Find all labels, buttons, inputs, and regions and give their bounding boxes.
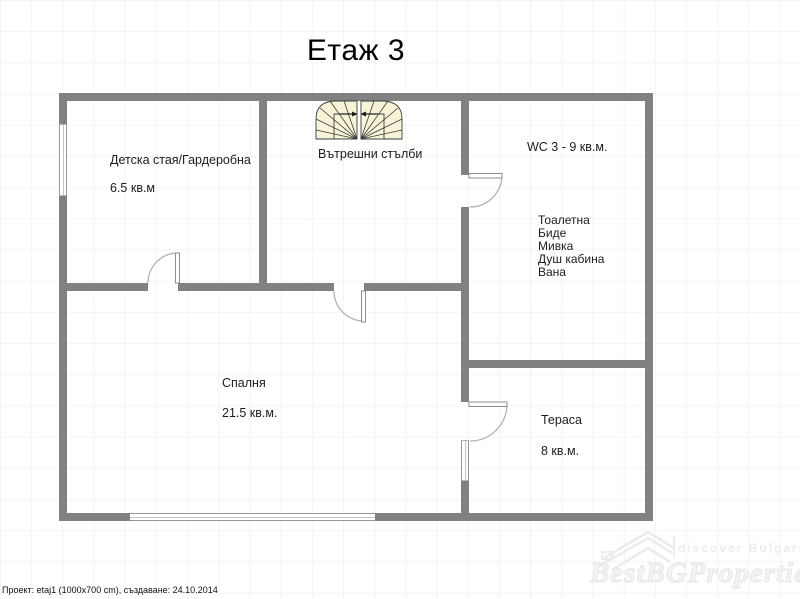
door-children-room	[148, 253, 180, 283]
stairs-label: Вътрешни стълби	[318, 147, 422, 161]
wc-fixture-item: Вана	[538, 266, 604, 279]
floor-plan-page: Етаж 3	[0, 0, 800, 599]
door-terrace	[469, 402, 507, 441]
bedroom-label: Спалня	[222, 376, 266, 390]
wc-fixture-list: Тоалетна Биде Мивка Душ кабина Вана	[538, 214, 604, 279]
children-room-label: Детска стая/Гардеробна	[110, 153, 251, 167]
terrace-area: 8 кв.м.	[541, 444, 579, 458]
doors-stairs-overlay	[0, 0, 800, 599]
door-bedroom	[334, 291, 366, 322]
stairs-icon	[316, 101, 402, 139]
door-wc	[469, 174, 502, 208]
children-room-area: 6.5 кв.м	[110, 181, 155, 195]
project-info: Проект: etaj1 (1000x700 cm), създаване: …	[2, 585, 218, 595]
bedroom-area: 21.5 кв.м.	[222, 406, 277, 420]
terrace-label: Тераса	[541, 413, 582, 427]
wc-label: WC 3 - 9 кв.м.	[527, 140, 607, 154]
